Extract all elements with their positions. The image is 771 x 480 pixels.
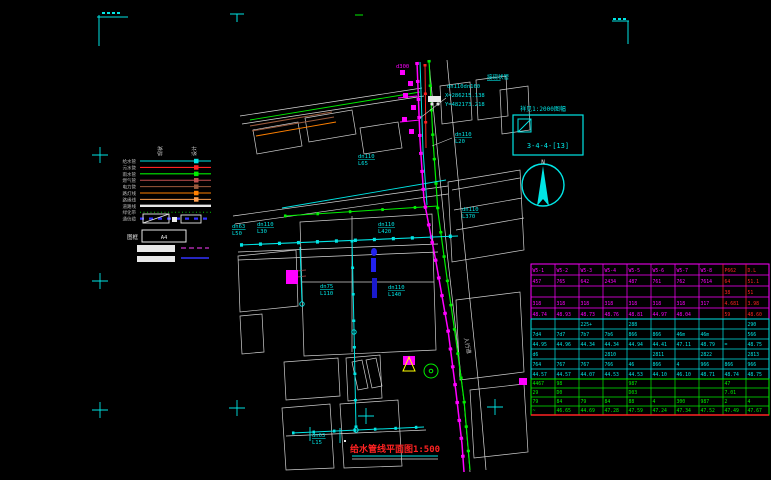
table-cell: = bbox=[725, 343, 728, 348]
map-label: dn110 bbox=[358, 154, 375, 160]
table-cell: 2810 bbox=[605, 352, 617, 358]
table-cell: 7d7 bbox=[557, 332, 566, 338]
utility-blue bbox=[371, 248, 377, 298]
table-cell: 47 bbox=[725, 381, 731, 387]
table-cell: 317 bbox=[701, 301, 710, 307]
table-cell: 2822 bbox=[701, 352, 713, 358]
legend-item-glyph bbox=[194, 191, 199, 196]
map-label: Y=482173.218 bbox=[445, 102, 485, 108]
table-cell: 966 bbox=[701, 362, 710, 368]
table-cell: 44.94 bbox=[629, 342, 644, 348]
misc-symbols bbox=[344, 96, 452, 442]
table-cell: 47.34 bbox=[677, 408, 692, 414]
table-cell: 44.97 bbox=[653, 312, 668, 318]
table-cell: 766 bbox=[605, 362, 614, 368]
table-cell: 48.93 bbox=[557, 312, 572, 318]
table-cell: 48.81 bbox=[629, 312, 644, 318]
map-label: L20 bbox=[455, 139, 465, 145]
legend-item-label: 燃气管 bbox=[123, 177, 137, 184]
table-cell: 318 bbox=[629, 301, 638, 307]
cad-viewport[interactable]: N 祥见1:2000图幅 3-4-4-[13] 现状 设计 给水管污水管雨水管燃… bbox=[0, 0, 771, 480]
table-cell: 88 bbox=[629, 399, 635, 405]
table-cell: 48.79 bbox=[701, 342, 716, 348]
table-cell: 48.74 bbox=[533, 312, 548, 318]
legend-item-glyph bbox=[194, 184, 199, 189]
table-cell: 457 bbox=[533, 279, 542, 285]
pipeline-brown bbox=[250, 112, 334, 278]
table-cell: 48.60 bbox=[748, 312, 763, 318]
legend-item-glyph bbox=[194, 172, 199, 177]
table-cell: 2811 bbox=[653, 352, 665, 358]
table-cell: 7.01 bbox=[725, 390, 737, 396]
table-cell: 987 bbox=[701, 399, 710, 405]
table-cell: 767 bbox=[557, 362, 566, 368]
legend-col-design: 设计 bbox=[191, 146, 198, 156]
legend-item-glyph bbox=[194, 197, 199, 202]
table-cell: 44.96 bbox=[557, 342, 572, 348]
parcel-outlines bbox=[238, 76, 530, 470]
table-cell: 767 bbox=[581, 362, 590, 368]
table-cell: 47.49 bbox=[725, 408, 740, 414]
frame-label: 图框 bbox=[127, 233, 139, 241]
map-label: dn110dn160 bbox=[447, 84, 480, 90]
table-cell: W5-8 bbox=[701, 268, 713, 274]
table-cell: 4.681 bbox=[725, 301, 740, 307]
table-cell: 79 bbox=[533, 399, 539, 405]
table-cell: W5-2 bbox=[557, 268, 569, 274]
index-code: 3-4-4-[13] bbox=[527, 142, 569, 150]
table-cell: 48.71 bbox=[701, 372, 716, 378]
table-cell: 44.57 bbox=[533, 372, 548, 378]
legend-item-label: 电力管 bbox=[123, 184, 137, 191]
legend-item-label: 道路线 bbox=[123, 203, 137, 210]
legend-item-label: 给水管 bbox=[123, 158, 137, 165]
table-cell: 7b6 bbox=[605, 332, 614, 338]
table-cell: 2813 bbox=[748, 352, 760, 358]
table-cell: 48.73 bbox=[581, 312, 596, 318]
legend-bar-2 bbox=[137, 256, 175, 262]
table-cell: 64 bbox=[725, 279, 731, 285]
table-cell: 866 bbox=[653, 362, 662, 368]
table-cell: 318 bbox=[605, 301, 614, 307]
table-cell: W5-3 bbox=[581, 268, 593, 274]
table-cell: 762 bbox=[677, 279, 686, 285]
table-cell: ~ bbox=[533, 409, 536, 414]
table-cell: 866 bbox=[653, 332, 662, 338]
table-cell: 44.41 bbox=[653, 342, 668, 348]
table-cell: 51 bbox=[748, 290, 754, 296]
table-cell: 7614 bbox=[701, 279, 713, 285]
table-cell: 38 bbox=[725, 290, 731, 296]
table-cell: 642 bbox=[581, 279, 590, 285]
table-cell: W5-5 bbox=[629, 268, 641, 274]
table-cell: 84 bbox=[605, 399, 611, 405]
legend-col-existing: 现状 bbox=[157, 146, 164, 156]
table-cell: 566 bbox=[748, 332, 757, 338]
table-cell: 318 bbox=[653, 301, 662, 307]
table-cell: 318 bbox=[677, 301, 686, 307]
table-cell: 47.59 bbox=[629, 408, 644, 414]
table-cell: 300 bbox=[677, 399, 686, 405]
table-cell: 29 bbox=[533, 390, 539, 396]
table-cell: D03 bbox=[629, 390, 638, 396]
table-cell: W5-1 bbox=[533, 268, 545, 274]
legend-block: 现状 设计 给水管污水管雨水管燃气管电力管路灯线路缘线道路线绿化带通信缆 图框 … bbox=[123, 146, 212, 262]
table-cell: 48.76 bbox=[605, 312, 620, 318]
legend-item-label: 雨水管 bbox=[123, 171, 137, 178]
table-cell: 47.24 bbox=[653, 408, 668, 414]
table-cell: D.L bbox=[748, 268, 757, 274]
north-arrow: N bbox=[522, 159, 564, 206]
map-label: d300 bbox=[396, 64, 409, 70]
table-cell: P662 bbox=[725, 268, 737, 274]
map-label: X=286215.138 bbox=[445, 93, 485, 99]
map-label: L370 bbox=[462, 214, 475, 220]
table-cell: 866 bbox=[629, 332, 638, 338]
table-cell: 966 bbox=[748, 362, 757, 368]
legend-item-label: 通信缆 bbox=[123, 216, 137, 223]
table-cell: 3.98 bbox=[748, 301, 760, 307]
table-cell: 44.07 bbox=[581, 372, 596, 378]
map-label: 人行道 bbox=[462, 337, 473, 355]
legend-item-label: 污水管 bbox=[123, 164, 137, 171]
map-label: L420 bbox=[378, 229, 391, 235]
table-cell: 987 bbox=[629, 381, 638, 387]
table-cell: W5-7 bbox=[677, 268, 689, 274]
table-cell: 46.65 bbox=[557, 408, 572, 414]
table-cell: 318 bbox=[581, 301, 590, 307]
table-cell: 47.11 bbox=[677, 342, 692, 348]
map-label: dn110 bbox=[388, 285, 405, 291]
table-cell: 290 bbox=[748, 322, 757, 328]
legend-item-glyph bbox=[194, 178, 199, 183]
table-cell: 765 bbox=[557, 279, 566, 285]
map-label: L65 bbox=[358, 161, 368, 167]
table-cell: 46m bbox=[701, 332, 710, 338]
sheet-corner-marks bbox=[97, 13, 629, 46]
table-cell: 761 bbox=[653, 279, 662, 285]
drawing-svg: N 祥见1:2000图幅 3-4-4-[13] 现状 设计 给水管污水管雨水管燃… bbox=[0, 0, 771, 480]
table-cell: 47.67 bbox=[748, 408, 763, 414]
table-cell: 44.34 bbox=[581, 342, 596, 348]
table-cell: 46m bbox=[677, 332, 686, 338]
table-cell: 48.75 bbox=[748, 342, 763, 348]
pipeline-orange bbox=[256, 122, 336, 136]
table-cell: 48.75 bbox=[748, 372, 763, 378]
north-label: N bbox=[541, 159, 545, 166]
table-cell: 318 bbox=[557, 301, 566, 307]
map-label: 接现状管 bbox=[487, 73, 510, 81]
map-label: L50 bbox=[232, 231, 242, 237]
table-cell: d6 bbox=[533, 352, 539, 358]
table-cell: 7d4 bbox=[533, 332, 542, 338]
legend-item-glyph bbox=[194, 165, 199, 170]
map-label: dn110 bbox=[257, 222, 274, 228]
data-table: W5-1W5-2W5-3W5-4W5-5W5-6W5-7W5-8P662D.L4… bbox=[531, 264, 769, 415]
drawing-title: 给水管线平面图1:500 bbox=[350, 443, 440, 459]
table-cell: 866 bbox=[725, 362, 734, 368]
table-cell: 47.52 bbox=[701, 408, 716, 414]
legend-item-label: 路缘线 bbox=[123, 196, 137, 203]
table-cell: 98 bbox=[557, 381, 563, 387]
table-cell: 44.57 bbox=[557, 372, 572, 378]
table-cell: 48.74 bbox=[725, 372, 740, 378]
table-cell: 84 bbox=[557, 399, 563, 405]
map-label: dn63 bbox=[312, 433, 325, 439]
table-cell: 46.10 bbox=[677, 372, 692, 378]
table-cell: 44.95 bbox=[533, 342, 548, 348]
table-cell: 4467 bbox=[533, 381, 545, 387]
table-cell: 4 bbox=[748, 399, 751, 405]
pipeline-magenta bbox=[286, 62, 527, 472]
map-label: dn110 bbox=[378, 222, 395, 228]
map-label: dn110 bbox=[455, 132, 472, 138]
table-cell: 288 bbox=[629, 322, 638, 328]
table-cell: 47.28 bbox=[605, 408, 620, 414]
table-cell: 44.53 bbox=[629, 372, 644, 378]
table-cell: 51.1 bbox=[748, 279, 760, 285]
road-edges bbox=[233, 60, 486, 472]
table-cell: 225+ bbox=[581, 322, 593, 328]
table-cell: 318 bbox=[533, 301, 542, 307]
table-cell: W5-4 bbox=[605, 268, 617, 274]
table-cell: 59 bbox=[725, 312, 731, 318]
legend-item-label: 绿化带 bbox=[123, 209, 137, 216]
vehicle-symbol bbox=[428, 96, 441, 102]
table-cell: 44.10 bbox=[653, 372, 668, 378]
table-cell: W5-6 bbox=[653, 268, 665, 274]
table-cell: 7b7 bbox=[581, 332, 590, 338]
table-cell: 2434 bbox=[605, 279, 617, 285]
table-cell: 44.34 bbox=[605, 342, 620, 348]
map-label: L30 bbox=[257, 229, 267, 235]
legend-bar-1 bbox=[137, 245, 175, 252]
table-cell: 44.53 bbox=[605, 372, 620, 378]
table-cell: 764 bbox=[533, 362, 542, 368]
title-text: 给水管线平面图1:500 bbox=[350, 443, 440, 455]
pipeline-red bbox=[425, 64, 426, 148]
legend-items: 给水管污水管雨水管燃气管电力管路灯线路缘线道路线绿化带通信缆 bbox=[123, 158, 212, 223]
map-label: dn110 bbox=[462, 207, 479, 213]
table-cell: 487 bbox=[629, 279, 638, 285]
legend-item-label: 路灯线 bbox=[123, 190, 137, 197]
map-label: dn75 bbox=[320, 284, 333, 290]
table-cell: D0 bbox=[557, 390, 563, 396]
map-label: L110 bbox=[320, 291, 333, 297]
table-cell: 2 bbox=[725, 399, 728, 405]
index-caption: 祥见1:2000图幅 bbox=[520, 105, 566, 113]
table-cell: 79 bbox=[581, 399, 587, 405]
frame-value: A4 bbox=[161, 235, 168, 241]
legend-item-glyph bbox=[194, 159, 199, 164]
table-cell: 4 bbox=[677, 362, 680, 368]
map-label: L15 bbox=[312, 440, 322, 446]
table-cell: 4 bbox=[653, 399, 656, 405]
sheet-index-box: 祥见1:2000图幅 3-4-4-[13] bbox=[513, 105, 583, 155]
table-cell: 44.69 bbox=[581, 408, 596, 414]
table-cell: 48.04 bbox=[677, 312, 692, 318]
table-cell: 46 bbox=[629, 362, 635, 368]
map-label: L140 bbox=[388, 292, 401, 298]
map-label: dn63 bbox=[232, 224, 245, 230]
